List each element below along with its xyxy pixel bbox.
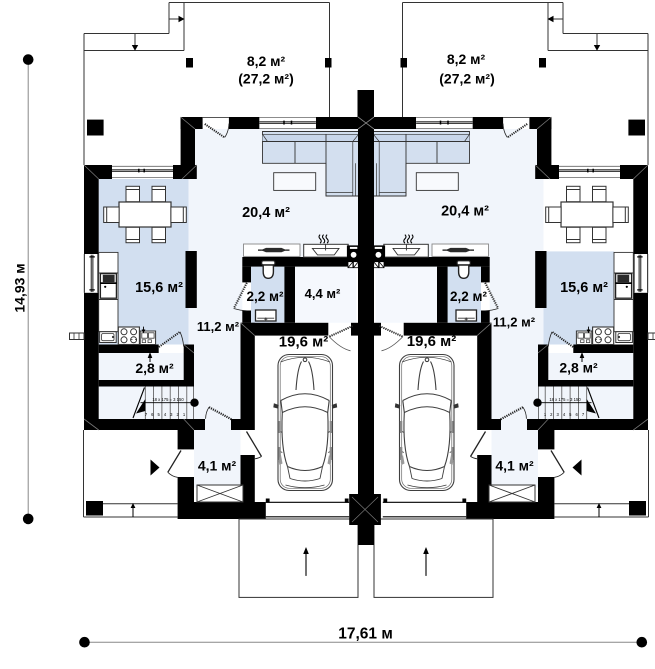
svg-text:20,4 м²: 20,4 м² xyxy=(242,205,290,221)
svg-text:18 x 175 = 3 150: 18 x 175 = 3 150 xyxy=(152,397,184,402)
svg-text:4,1 м²: 4,1 м² xyxy=(198,458,237,474)
svg-text:15,6 м²: 15,6 м² xyxy=(560,280,608,296)
svg-text:4,1 м²: 4,1 м² xyxy=(495,458,534,474)
svg-text:17,61 м: 17,61 м xyxy=(338,626,393,643)
svg-text:11,2 м²: 11,2 м² xyxy=(197,319,240,334)
svg-text:14,93 м: 14,93 м xyxy=(12,263,28,312)
svg-text:18 x 175 = 3 150: 18 x 175 = 3 150 xyxy=(549,397,581,402)
svg-text:2,2 м²: 2,2 м² xyxy=(450,289,488,304)
svg-text:19,6 м²: 19,6 м² xyxy=(279,334,328,351)
svg-text:2,2 м²: 2,2 м² xyxy=(247,289,285,304)
svg-text:7654321: 7654321 xyxy=(145,412,189,417)
svg-text:15,6 м²: 15,6 м² xyxy=(135,280,183,296)
svg-text:4,4 м²: 4,4 м² xyxy=(305,286,341,301)
svg-text:19,6 м²: 19,6 м² xyxy=(407,333,456,350)
svg-text:20,4 м²: 20,4 м² xyxy=(441,204,489,220)
svg-text:(27,2 м²): (27,2 м²) xyxy=(439,71,494,87)
svg-text:2,8 м²: 2,8 м² xyxy=(135,360,174,376)
svg-text:2,8 м²: 2,8 м² xyxy=(559,360,598,376)
svg-text:8,2 м²: 8,2 м² xyxy=(247,53,286,69)
svg-text:1234567: 1234567 xyxy=(544,412,588,417)
svg-text:8,2 м²: 8,2 м² xyxy=(447,51,486,67)
svg-text:(27,2 м²): (27,2 м²) xyxy=(238,71,293,87)
svg-text:11,2 м²: 11,2 м² xyxy=(493,315,536,330)
